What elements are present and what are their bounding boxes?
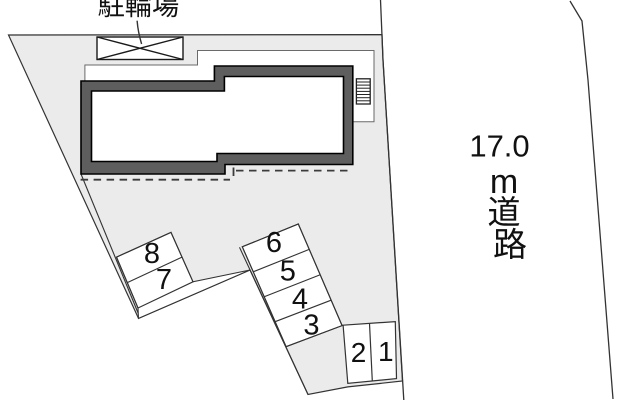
- svg-text:7: 7: [156, 264, 172, 296]
- svg-text:m: m: [490, 163, 518, 201]
- svg-text:17.0: 17.0: [469, 129, 529, 164]
- svg-text:2: 2: [351, 337, 367, 368]
- svg-text:6: 6: [266, 227, 282, 259]
- svg-text:3: 3: [303, 310, 319, 342]
- svg-text:1: 1: [378, 336, 394, 367]
